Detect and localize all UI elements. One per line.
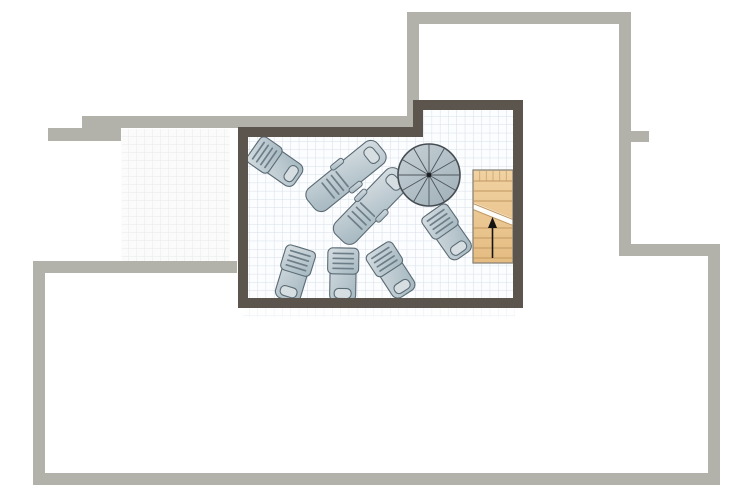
terrace-wall-right	[513, 100, 523, 308]
wall-top-left-main	[82, 116, 419, 128]
floor-plan-drawing	[0, 0, 754, 498]
floor-plan-canvas	[0, 0, 754, 498]
terrace-wall-left	[238, 127, 248, 308]
wall-top-left-stub	[48, 128, 121, 141]
terrace-floor-spill	[243, 308, 515, 317]
wall-top	[407, 12, 631, 24]
wall-right-jog	[619, 244, 720, 256]
left-area-floor	[122, 129, 230, 261]
terrace-wall-bottom	[238, 298, 523, 308]
wall-right-stub	[631, 131, 649, 142]
wall-right-upper	[619, 12, 631, 245]
wall-right-lower	[708, 244, 720, 485]
staircase[interactable]	[473, 170, 513, 263]
wall-bottom	[33, 473, 720, 485]
terrace-wall-top-right	[413, 100, 523, 110]
spiral-staircase[interactable]	[398, 144, 460, 206]
terrace-wall-top-left	[238, 127, 423, 137]
spiral-center-post	[427, 173, 432, 178]
sun-lounger-6[interactable]	[327, 248, 359, 303]
wall-mid-horizontal	[33, 261, 237, 273]
wall-left	[33, 261, 45, 485]
